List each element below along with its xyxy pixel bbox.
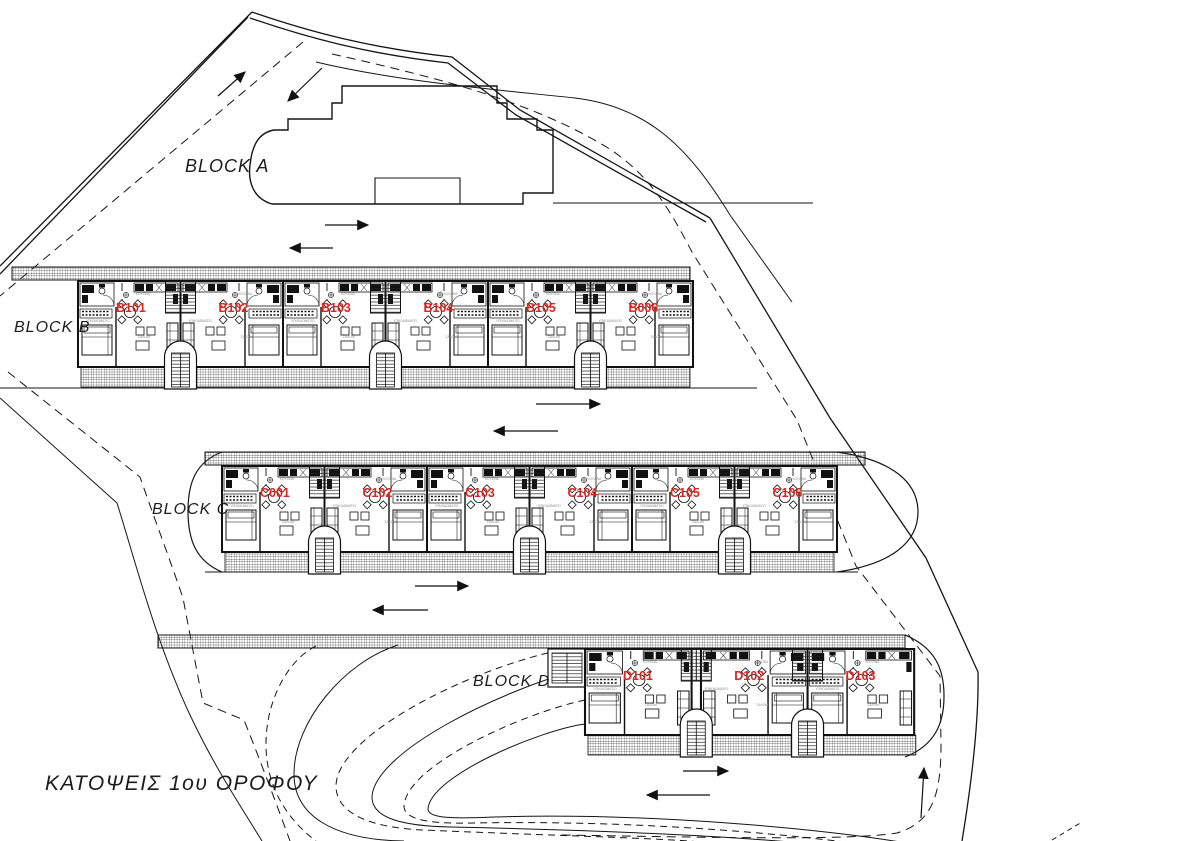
room-label: ΚΟΥΖΙΝΑ [866,660,881,664]
room-label: ΥΠΝΟΔΩΜΑΤΙΟ [704,687,728,691]
unit-floorplan [585,649,692,735]
unit-label: B103 [321,301,351,315]
site-plan-page: B101ΚΟΥΖΙΝΑΥΠΝΟΔΩΜΑΤΙΟΣΑΛΟΝΙB102ΚΟΥΖΙΝΑΥ… [0,0,1198,841]
stairwell-shaft [515,466,545,498]
room-label: ΥΠΝΟΔΩΜΑΤΙΟ [333,504,357,508]
unit-label: C102 [363,486,393,500]
page-title: ΚΑΤΟΨΕΙΣ 1ου ΟΡΟΦΟΥ [45,772,319,795]
balcony-strip [588,735,916,755]
room-label: ΥΠΝΟΔΩΜΑΤΙΟ [496,319,520,323]
block-d-label: BLOCK D [473,673,550,690]
stairwell-shaft [166,281,196,313]
stairwell-shaft [576,281,606,313]
room-label: ΚΟΥΖΙΝΑ [754,660,769,664]
stair-tower [719,526,751,574]
unit-label: D103 [846,669,876,683]
stairwell-shaft [310,466,340,498]
room-label: ΣΑΛΟΝΙ [651,335,663,339]
room-label: ΣΑΛΟΝΙ [487,520,499,524]
room-label: ΥΠΝΟΔΩΜΑΤΙΟ [394,319,418,323]
room-label: ΣΑΛΟΝΙ [795,520,807,524]
room-label: ΚΟΥΖΙΝΑ [383,477,398,481]
stairwell-shaft [720,466,750,498]
block-a-label: BLOCK A [185,156,269,176]
room-label: ΣΑΛΟΝΙ [241,335,253,339]
room-label: ΥΠΝΟΔΩΜΑΤΙΟ [189,319,213,323]
room-label: ΚΟΥΖΙΝΑ [136,292,151,296]
room-label: ΣΑΛΟΝΙ [645,703,657,707]
block-b-label: BLOCK B [14,319,90,336]
room-label: ΚΟΥΖΙΝΑ [239,292,254,296]
walkway-strip [205,452,865,465]
stair-tower [575,341,607,389]
room-label: ΣΑΛΟΝΙ [756,703,768,707]
room-label: ΣΑΛΟΝΙ [548,335,560,339]
block-c-label: BLOCK C [152,501,229,518]
room-label: ΣΑΛΟΝΙ [282,520,294,524]
unit-label: B006 [629,301,659,315]
room-label: ΥΠΝΟΔΩΜΑΤΙΟ [538,504,562,508]
room-label: ΚΟΥΖΙΝΑ [546,292,561,296]
room-label: ΥΠΝΟΔΩΜΑΤΙΟ [230,504,254,508]
unit-label: D102 [734,669,764,683]
stair-tower [165,341,197,389]
room-label: ΥΠΝΟΔΩΜΑΤΙΟ [593,687,617,691]
walkway-strip [158,635,905,648]
stair-tower [792,709,824,757]
room-label: ΚΟΥΖΙΝΑ [793,477,808,481]
room-label: ΣΑΛΟΝΙ [692,520,704,524]
stairwell-shaft [793,649,823,681]
road-centerlines-dashed [0,42,1082,841]
room-label: ΚΟΥΖΙΝΑ [643,660,658,664]
walkway-strip [12,267,690,280]
unit-label: B102 [219,301,249,315]
stairwell-shaft [371,281,401,313]
room-label: ΚΟΥΖΙΝΑ [649,292,664,296]
unit-label: C104 [568,486,598,500]
room-label: ΥΠΝΟΔΩΜΑΤΙΟ [640,504,664,508]
room-label: ΣΑΛΟΝΙ [590,520,602,524]
room-label: ΥΠΝΟΔΩΜΑΤΙΟ [291,319,315,323]
room-label: ΚΟΥΖΙΝΑ [280,477,295,481]
room-label: ΣΑΛΟΝΙ [385,520,397,524]
unit-label: C001 [260,486,290,500]
room-label: ΚΟΥΖΙΝΑ [485,477,500,481]
unit-label: D101 [623,669,653,683]
block-a-building-outline [250,86,553,204]
stair-tower [514,526,546,574]
stair-tower [309,526,341,574]
room-label: ΥΠΝΟΔΩΜΑΤΙΟ [816,687,840,691]
room-label: ΥΠΝΟΔΩΜΑΤΙΟ [743,504,767,508]
stair-tower [370,341,402,389]
unit-label: B104 [424,301,454,315]
unit-label: C106 [773,486,803,500]
room-label: ΥΠΝΟΔΩΜΑΤΙΟ [435,504,459,508]
unit-label: B105 [526,301,556,315]
room-label: ΚΟΥΖΙΝΑ [444,292,459,296]
unit-label: B101 [116,301,146,315]
room-label: ΣΑΛΟΝΙ [446,335,458,339]
room-label: ΣΑΛΟΝΙ [138,335,150,339]
unit-label: C105 [670,486,700,500]
room-label: ΚΟΥΖΙΝΑ [588,477,603,481]
room-label: ΚΟΥΖΙΝΑ [690,477,705,481]
room-label: ΣΑΛΟΝΙ [343,335,355,339]
unit-label: C103 [465,486,495,500]
room-label: ΚΟΥΖΙΝΑ [341,292,356,296]
site-plan-drawing: B101ΚΟΥΖΙΝΑΥΠΝΟΔΩΜΑΤΙΟΣΑΛΟΝΙB102ΚΟΥΖΙΝΑΥ… [0,0,1198,841]
stair-tower [680,709,712,757]
room-label: ΥΠΝΟΔΩΜΑΤΙΟ [599,319,623,323]
stairwell-shaft [681,649,711,681]
room-label: ΣΑΛΟΝΙ [868,703,880,707]
